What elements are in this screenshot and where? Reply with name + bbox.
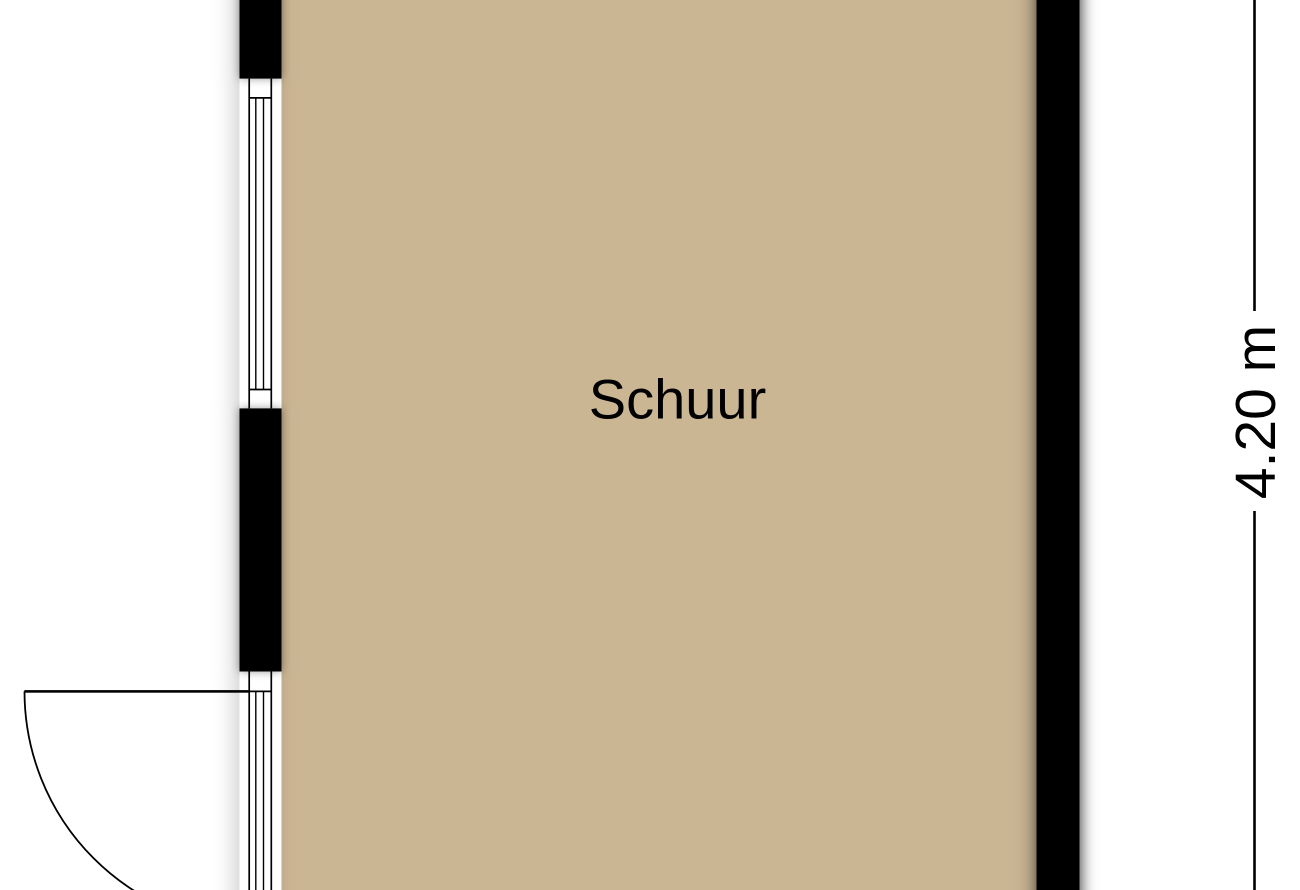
svg-text:4.20 m: 4.20 m (1224, 325, 1288, 499)
svg-text:Schuur: Schuur (589, 367, 766, 430)
